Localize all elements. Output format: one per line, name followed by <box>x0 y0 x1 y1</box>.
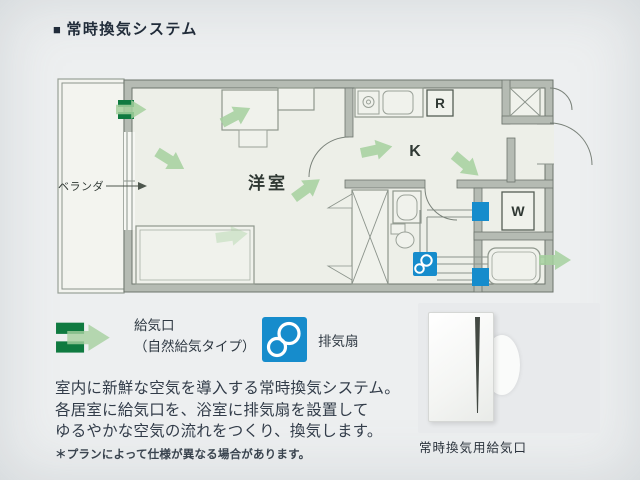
description-line: ゆるやかな空気の流れをつくり、換気します。 <box>55 421 400 443</box>
description-text: 室内に新鮮な空気を導入する常時換気システム。 各居室に給気口を、浴室に排気扇を設… <box>55 378 400 466</box>
description-line: 各居室に給気口を、浴室に排気扇を設置して <box>55 400 400 422</box>
washbasin <box>393 191 421 223</box>
duct-vent <box>472 268 489 286</box>
shaft-box <box>510 88 540 116</box>
supply-vent-photo <box>418 303 600 433</box>
entry-opening <box>537 124 554 164</box>
description-note: ＊プランによって仕様が異なる場合があります。 <box>55 445 400 467</box>
balcony-window <box>124 132 135 230</box>
legend-supply-label: 給気口 （自然給気タイプ） <box>134 315 256 357</box>
description-line: 室内に新鮮な空気を導入する常時換気システム。 <box>55 378 400 400</box>
legend-supply-icon <box>56 318 114 361</box>
kitchen-counter <box>355 88 423 117</box>
photo-caption: 常時換気用給気口 <box>419 437 527 456</box>
duct-vent <box>472 202 489 221</box>
kitchen-sink <box>383 91 413 114</box>
entry-door-arc <box>550 123 592 165</box>
bathtub <box>488 248 540 284</box>
label-balcony: ベランダ <box>58 179 104 193</box>
exhaust-fan-icon <box>413 252 437 276</box>
label-washing-machine: W <box>511 203 525 219</box>
label-western-room: 洋室 <box>248 173 288 193</box>
legend-exhaust-label: 排気扇 <box>318 330 359 350</box>
legend-exhaust-icon <box>262 317 307 362</box>
title-text: 常時換気システム <box>66 21 198 38</box>
label-kitchen: K <box>409 143 421 160</box>
brochure-page: ■常時換気システム <box>0 0 640 480</box>
title-bullet-icon: ■ <box>53 22 62 37</box>
label-refrigerator: R <box>435 96 445 111</box>
vent-panel <box>428 312 494 422</box>
floor-plan: 洋室 K R W ベランダ <box>50 68 610 318</box>
page-title: ■常時換気システム <box>53 18 198 39</box>
